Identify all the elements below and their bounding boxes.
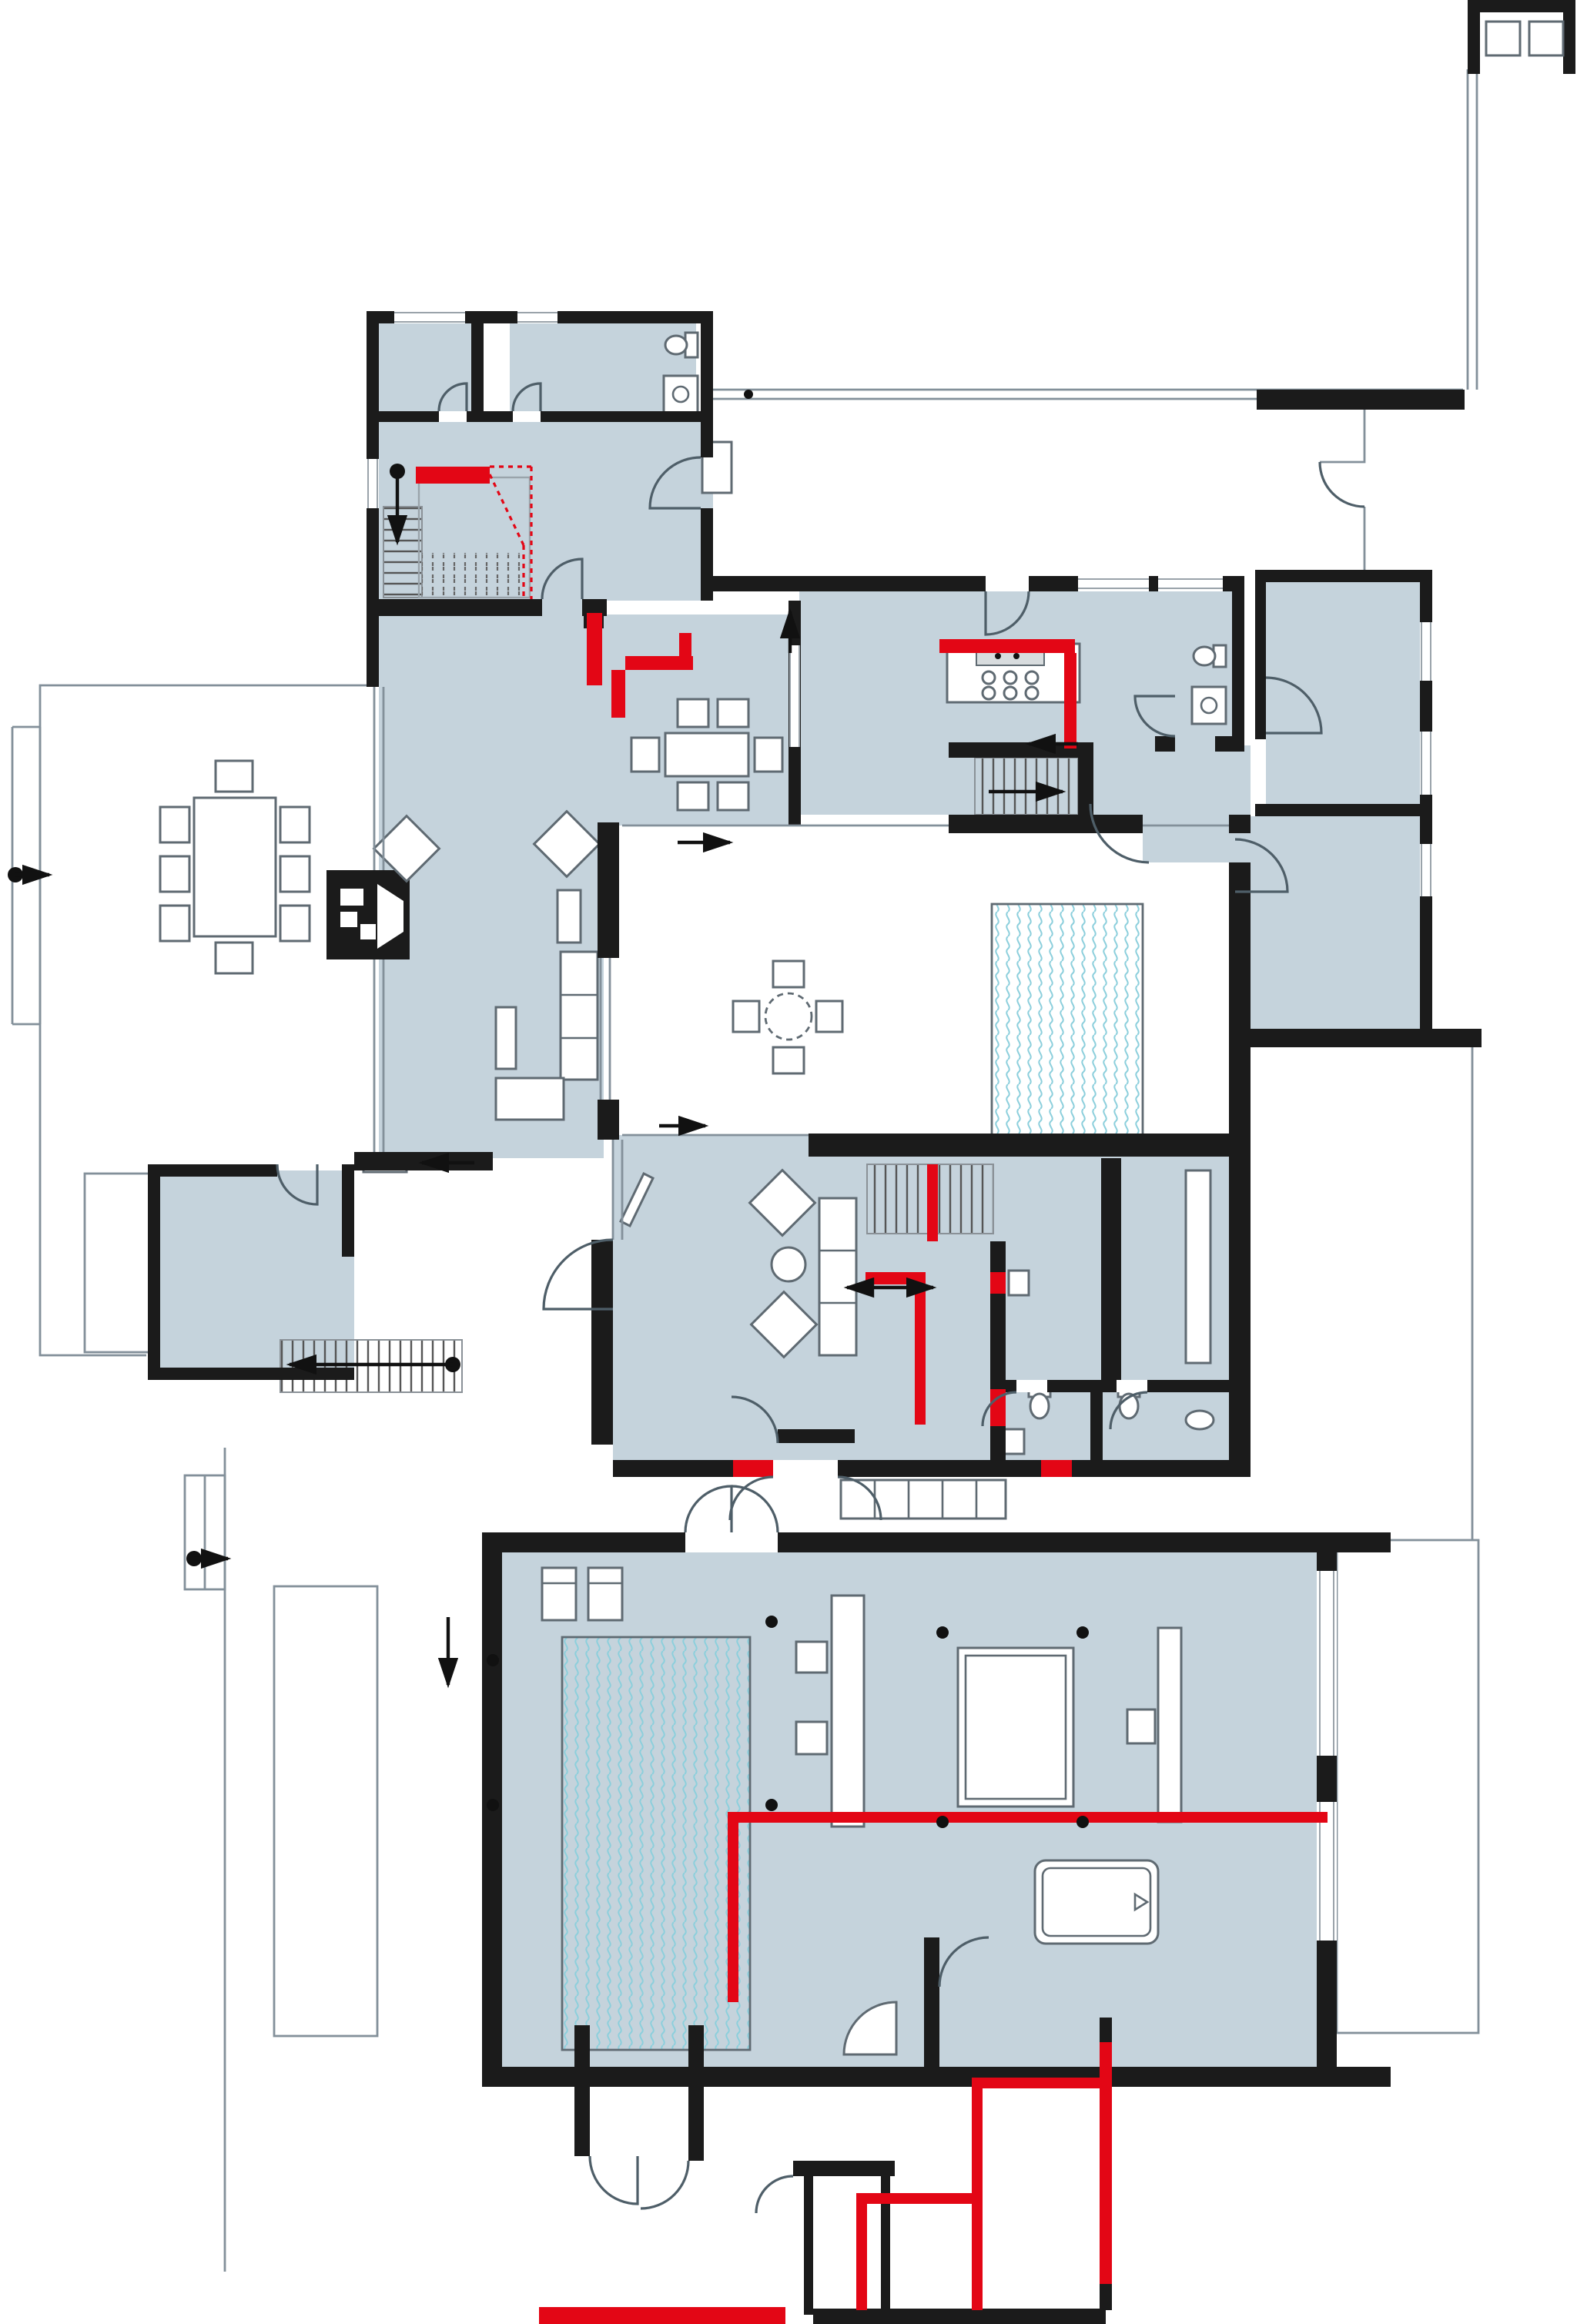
dining-table [665,733,748,776]
wall [342,1164,354,1257]
chair [773,1047,804,1073]
wall [924,1937,939,2082]
wall [1229,815,1251,833]
wall [1232,591,1244,745]
stool [796,1722,827,1754]
burner [1026,687,1038,699]
bedroom-east-1 [1266,582,1420,804]
wall [148,1164,277,1177]
post-dot [744,390,753,399]
courtyard-link [1143,825,1229,862]
wall [688,2025,704,2161]
stool [796,1642,827,1673]
wardrobe-row [1186,1170,1210,1363]
door-gap [685,1532,778,1552]
bedroom-upper [379,323,471,413]
column-dot [936,1816,949,1828]
red-wall [611,670,625,718]
wall-slot [790,645,799,747]
stair-dot [390,464,405,479]
lounge-chair [542,1568,576,1620]
wall [1090,1386,1103,1460]
wall [813,2309,1106,2324]
toilet-icon [1194,647,1215,665]
wall [598,822,619,958]
red-extension [539,2307,785,2324]
washbasin [664,376,698,414]
chair [280,856,310,892]
wall [148,1368,354,1380]
red-wall [679,633,691,656]
sofa-2 [496,1078,564,1120]
washbasin [1192,687,1226,724]
hall-stair-lower-flight [422,553,530,599]
column-dot [1076,1626,1089,1639]
column-dot [936,1626,949,1639]
utility-unit [1486,22,1520,55]
chair [160,906,189,941]
garden-gate-arc [1320,462,1364,507]
fireplace-opening [360,924,376,939]
fireplace-opening [340,912,357,927]
bedside-table [1127,1710,1155,1743]
wall [793,2161,895,2176]
toilet-icon [665,336,687,354]
wall [990,1241,1006,1272]
window [367,459,379,508]
chair [678,782,708,810]
toilet-icon [1030,1394,1049,1418]
window [1078,576,1149,591]
chair [280,807,310,842]
chair [755,738,782,772]
utility-unit [1529,22,1563,55]
red-door-mark [733,1460,773,1477]
cabinet [1009,1271,1029,1295]
wall [1229,1029,1482,1047]
red-extension [972,2078,1107,2088]
chair [280,906,310,941]
wall [1563,0,1575,74]
wall [1257,390,1465,410]
wall [1255,570,1266,739]
wall [1468,0,1480,74]
column-dot [1076,1816,1089,1828]
column-dot [487,1799,499,1811]
wall [838,1460,1041,1477]
burner [1026,671,1038,684]
window [517,311,557,323]
terrace-table [194,798,276,936]
wall [1100,2284,1112,2310]
wall [613,1460,733,1477]
red-wall [927,1164,938,1241]
red-wall-kitchen [939,639,1075,653]
hall-stair-upper-flight [383,507,422,598]
round-side-table [772,1247,805,1281]
wall [1468,0,1575,12]
wall [1155,736,1175,752]
chair [678,699,708,727]
wall [949,815,1143,833]
burner [1004,687,1016,699]
knob [995,653,1001,659]
red-wall-kitchen [1064,653,1076,748]
chair [773,961,804,987]
terrace-dining-set [160,761,310,973]
gate-path [1320,410,1364,462]
red-wall [587,613,602,685]
wall [990,1294,1006,1389]
red-extension [856,2193,976,2204]
lounge-chair [588,1568,622,1620]
burner [983,671,995,684]
chair [816,1001,842,1032]
window [1420,732,1432,795]
wall [809,1134,1251,1157]
wall [1101,1158,1121,1383]
bed [958,1648,1073,1807]
double-door-arc [685,1486,732,1532]
wall [471,323,484,411]
chair [718,782,748,810]
courtyard-pool [992,904,1143,1135]
door-gap [513,411,541,422]
chair [631,738,659,772]
wall [1072,1460,1251,1477]
wall [1100,2018,1112,2042]
burner [1004,671,1016,684]
column-dot [765,1799,778,1811]
chair [733,1001,759,1032]
wall [804,2176,813,2315]
red-wall-stair [416,467,490,484]
door-gap [439,411,467,422]
porch-door-arc [641,2161,688,2208]
porch-door-arc [590,2156,638,2204]
door-gap [1117,1380,1147,1392]
wall [148,1164,160,1380]
wall [574,2025,590,2156]
toilet-icon [1186,1411,1214,1429]
fireplace-opening [340,889,363,906]
door-arc [730,1477,773,1520]
wall [701,311,713,457]
red-wall [915,1284,926,1425]
fireplace [326,870,410,959]
pool-terrace [1337,1540,1478,2033]
kitchen-stair-down [975,758,1078,815]
floor-plan-canvas [0,0,1577,2324]
window [1420,622,1432,681]
sofa [819,1198,856,1355]
floor-plan-drawing [0,0,1577,2324]
red-door-mark [1041,1460,1072,1477]
window [1420,844,1432,896]
sofa [561,952,598,1080]
door-arc [756,2176,793,2213]
chair [718,699,748,727]
wall [367,599,542,616]
door-gap [986,576,1029,591]
column-dot [765,1616,778,1628]
column-dot [487,1654,499,1666]
door-gap [1016,1380,1047,1392]
wall [778,1429,855,1443]
red-door-mark [990,1272,1006,1294]
planter [274,1586,377,2036]
window [1158,576,1223,591]
chair [216,761,253,792]
chair [160,856,189,892]
red-wall [625,656,693,670]
window [394,311,465,323]
red-wall [866,1272,926,1284]
wall [701,508,713,601]
shelf-divider [832,1596,864,1827]
wall [990,1426,1006,1460]
red-extension [856,2193,867,2310]
wall [1255,570,1432,582]
knob [1013,653,1020,659]
wardrobe [1158,1628,1181,1822]
indoor-pool [562,1637,750,2050]
chair [216,943,253,973]
wall [598,1100,619,1140]
burner [983,687,995,699]
wall [591,1240,613,1445]
wall [1255,804,1420,816]
round-table [765,993,812,1040]
wall [482,1532,1391,1552]
sideboard [496,1007,516,1069]
bathtub [1035,1860,1158,1944]
window [1317,1571,1337,1756]
side-table [557,890,581,943]
chair [160,807,189,842]
courtyard [619,825,1229,1135]
